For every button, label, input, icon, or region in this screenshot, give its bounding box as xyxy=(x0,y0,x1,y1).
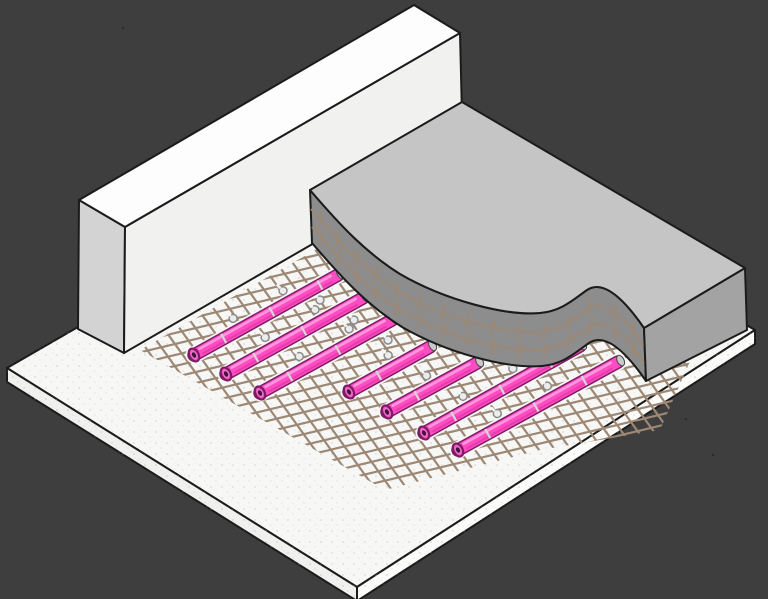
isometric-construction-diagram xyxy=(0,0,768,599)
viewport xyxy=(0,0,768,599)
dust-speck xyxy=(122,27,124,29)
dust-speck xyxy=(685,418,687,420)
dust-speck xyxy=(712,454,714,456)
